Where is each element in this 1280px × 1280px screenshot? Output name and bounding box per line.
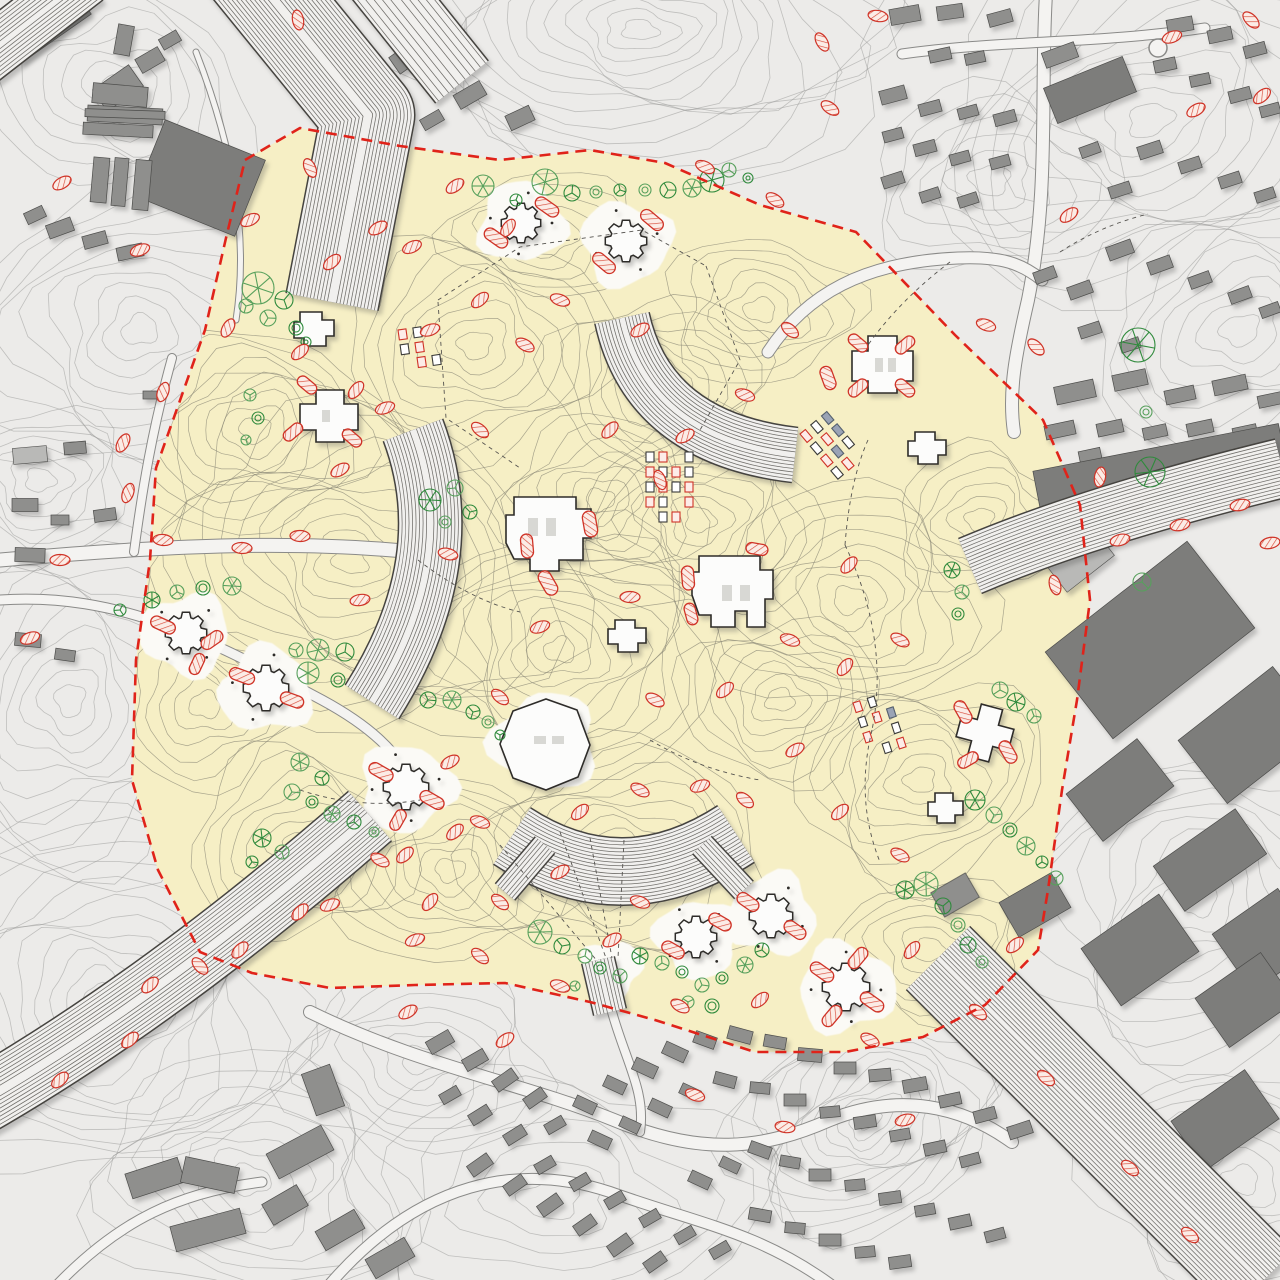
context-building: [809, 1169, 831, 1181]
context-building: [819, 1234, 841, 1246]
context-building: [64, 441, 87, 455]
stall: [685, 452, 693, 462]
interior-mark: [888, 358, 896, 372]
entrance-dot: [251, 718, 254, 721]
interior-mark: [552, 736, 564, 744]
context-building: [12, 499, 38, 512]
gear-pavilion: [605, 220, 646, 261]
car-shrub-ellipse: [232, 542, 253, 554]
entrance-dot: [787, 887, 790, 890]
interior-mark: [322, 410, 330, 422]
entrance-dot: [394, 753, 397, 756]
context-building: [90, 157, 110, 203]
entrance-dot: [715, 960, 718, 963]
entrance-dot: [205, 656, 208, 659]
stall: [400, 344, 409, 355]
entrance-dot: [879, 989, 882, 992]
context-building: [785, 1222, 806, 1235]
entrance-dot: [371, 788, 374, 791]
context-building: [888, 1255, 911, 1270]
stall: [646, 452, 654, 462]
context-building: [845, 1179, 866, 1192]
stall: [685, 497, 693, 507]
ribbed-bar-building: [598, 960, 610, 1012]
entrance-dot: [850, 1020, 853, 1023]
stall: [398, 329, 407, 340]
stall: [659, 512, 667, 522]
entrance-dot: [517, 253, 520, 256]
context-building: [51, 515, 69, 525]
stall: [659, 497, 667, 507]
stall: [672, 482, 680, 492]
entrance-dot: [207, 609, 210, 612]
entrance-dot: [166, 657, 169, 660]
stall: [685, 482, 693, 492]
context-building: [54, 648, 75, 662]
context-building: [92, 83, 149, 108]
context-building: [869, 1068, 892, 1082]
car-shrub-ellipse: [290, 530, 310, 542]
entrance-dot: [231, 681, 234, 684]
entrance-dot: [656, 232, 659, 235]
interior-mark: [722, 585, 732, 601]
entrance-dot: [810, 988, 813, 991]
interior-mark: [875, 358, 883, 372]
context-building: [12, 446, 47, 465]
entrance-dot: [410, 819, 413, 822]
context-building: [878, 1191, 901, 1206]
context-building: [834, 1062, 856, 1074]
entrance-dot: [160, 611, 163, 614]
context-building: [93, 508, 116, 523]
entrance-dot: [615, 209, 618, 212]
entrance-dot: [527, 191, 530, 194]
context-building: [784, 1094, 806, 1106]
entrance-pad: [520, 534, 534, 559]
entrance-pad: [681, 566, 695, 591]
interior-mark: [546, 518, 556, 536]
site-plan-stage: [0, 0, 1280, 1280]
interior-mark: [528, 518, 538, 536]
context-building: [15, 547, 45, 562]
context-building: [853, 1115, 876, 1130]
entrance-dot: [438, 778, 441, 781]
context-building: [820, 1106, 841, 1119]
context-building: [143, 391, 157, 399]
stall: [417, 357, 426, 368]
interior-mark: [534, 736, 546, 744]
stall: [685, 467, 693, 477]
stall: [432, 354, 441, 365]
stall: [415, 342, 424, 353]
entrance-dot: [551, 222, 554, 225]
stall: [672, 467, 680, 477]
stall: [646, 467, 654, 477]
interior-mark: [740, 585, 750, 601]
context-building: [750, 1082, 771, 1095]
entrance-dot: [273, 654, 276, 657]
entrance-dot: [489, 217, 492, 220]
stall: [672, 512, 680, 522]
stall: [659, 452, 667, 462]
stall: [646, 482, 654, 492]
entrance-dot: [845, 951, 848, 954]
octagon-pavilion: [500, 699, 590, 790]
entrance-dot: [678, 908, 681, 911]
car-shrub-ellipse: [50, 555, 70, 566]
car-shrub-ellipse: [620, 592, 640, 603]
masterplan-drawing: [0, 0, 1280, 1280]
entrance-dot: [639, 268, 642, 271]
stall: [646, 497, 654, 507]
context-building: [797, 1047, 822, 1062]
context-building: [855, 1246, 876, 1259]
